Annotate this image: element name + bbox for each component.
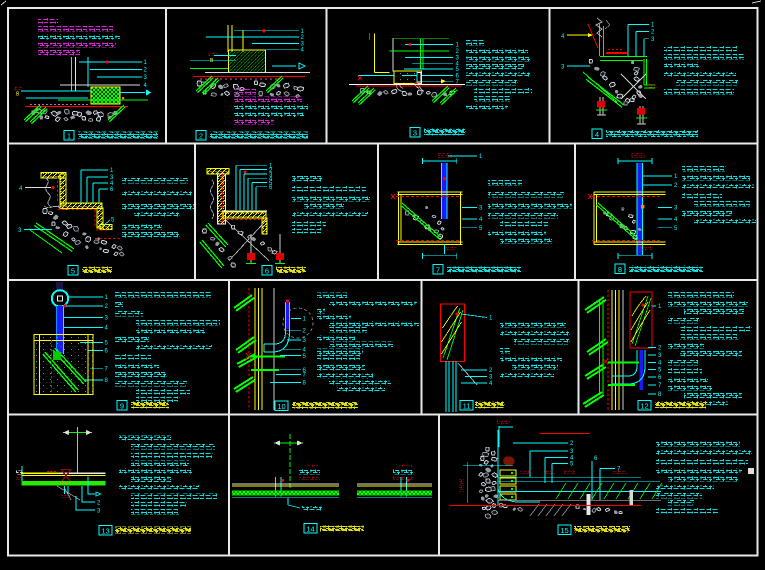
svg-text:4: 4	[595, 130, 599, 139]
svg-text:6: 6	[265, 266, 269, 275]
svg-text:15: 15	[560, 526, 568, 535]
svg-text:9: 9	[120, 401, 124, 410]
svg-text:13: 13	[101, 526, 109, 535]
svg-text:11: 11	[463, 401, 471, 410]
svg-text:3: 3	[413, 128, 417, 137]
svg-text:14: 14	[306, 524, 314, 533]
svg-text:8: 8	[618, 265, 622, 274]
svg-text:10: 10	[277, 402, 285, 411]
svg-text:5: 5	[71, 266, 75, 275]
svg-text:2: 2	[199, 131, 203, 140]
svg-text:7: 7	[436, 265, 440, 274]
svg-text:1: 1	[67, 131, 71, 140]
svg-text:12: 12	[640, 401, 648, 410]
